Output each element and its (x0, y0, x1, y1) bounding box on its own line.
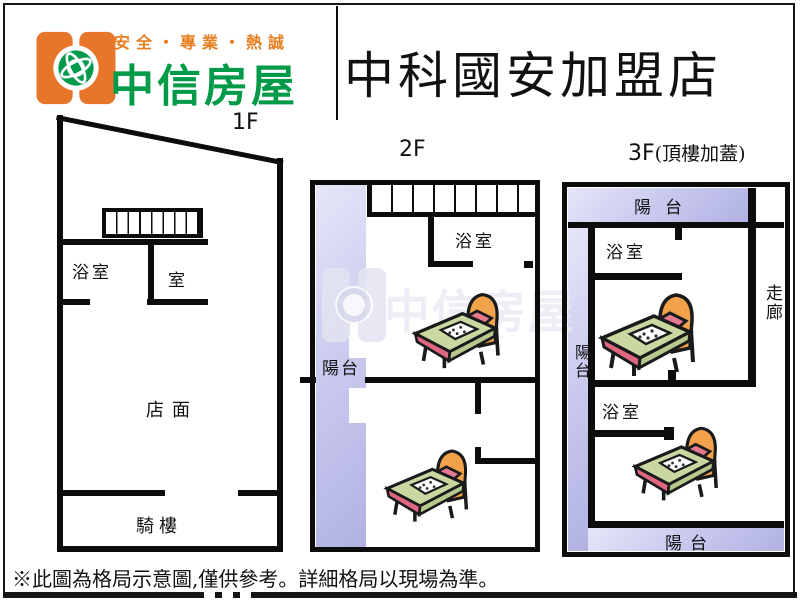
wall (365, 377, 540, 383)
room-label-bathroom: 浴室 (602, 398, 642, 423)
room-label-bathroom: 浴室 (455, 227, 495, 252)
room-label-room: 室 (168, 266, 188, 291)
wall (595, 521, 784, 528)
wall (57, 490, 165, 496)
floorplan-flyer: 安全・專業・熱誠 中信房屋 中科國安加盟店 1F 浴室 室 店面 騎樓 2F 陽… (0, 0, 800, 600)
chinatrust-globe-logo-icon (34, 27, 118, 109)
wall (480, 458, 540, 464)
wall (675, 228, 682, 240)
room-label-arcade: 騎樓 (136, 512, 182, 538)
wall (748, 188, 756, 387)
wall (428, 261, 473, 267)
header-divider (336, 6, 338, 120)
room-label-balcony: 陽台 (316, 354, 366, 379)
wall (428, 215, 434, 266)
floor3-label: 3F(頂樓加蓋) (628, 139, 745, 166)
wall (57, 115, 63, 552)
bed-icon (380, 442, 476, 528)
room-label-balcony: 陽台 (588, 529, 784, 554)
wall (147, 299, 208, 305)
room-label-balcony: 陽台 (569, 344, 593, 380)
border-dash (240, 592, 251, 598)
bed-icon (588, 288, 710, 380)
stairs-icon (102, 208, 203, 238)
wall (238, 490, 283, 496)
brand-name: 中信房屋 (110, 50, 298, 114)
room-label-balcony: 陽台 (568, 193, 748, 218)
room-label-store: 店面 (146, 396, 198, 422)
floor3-label-note: (頂樓加蓋) (655, 143, 746, 165)
wall (57, 546, 283, 552)
wall (148, 241, 154, 305)
border-dash (222, 592, 233, 598)
page-border-bottom (3, 592, 797, 598)
wall (57, 239, 208, 245)
wall (300, 377, 316, 383)
wall (524, 261, 533, 268)
floor2-label: 2F (399, 137, 426, 162)
room-label-bathroom: 浴室 (606, 238, 646, 263)
bed-icon (628, 420, 726, 506)
room-label-bathroom: 浴室 (72, 258, 112, 283)
wall (588, 273, 682, 280)
floor1-label: 1F (232, 110, 259, 135)
bed-icon (408, 285, 508, 375)
floor3-label-number: 3F (628, 141, 655, 166)
room-label-corridor: 走廊 (760, 284, 785, 322)
border-dash (204, 592, 215, 598)
stairs-icon (367, 185, 537, 217)
wall (588, 380, 756, 387)
wall (57, 299, 90, 305)
store-title: 中科國安加盟店 (344, 36, 722, 108)
wall (475, 383, 481, 414)
disclaimer-text: ※此圖為格局示意圖,僅供參考。詳細格局以現場為準。 (12, 563, 498, 592)
